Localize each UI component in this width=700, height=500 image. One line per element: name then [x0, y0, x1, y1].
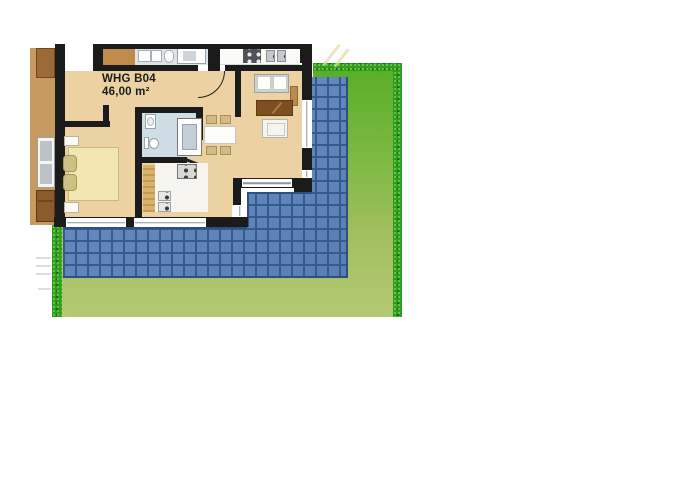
- nightstand-top: [64, 136, 79, 146]
- upper-toilet: [164, 50, 174, 63]
- sofa-cushion-2: [273, 76, 287, 90]
- wall-hall: [65, 121, 110, 127]
- lawn-border-right: [393, 63, 402, 317]
- wall-east-upper: [302, 63, 312, 100]
- upper-appliance-1: [266, 50, 275, 62]
- unit-name: WHG B04: [102, 73, 156, 86]
- bath-shower-tray: [182, 124, 197, 150]
- window-east-small: [302, 170, 311, 178]
- upper-stove: [243, 49, 261, 63]
- nightstand-bottom: [64, 202, 79, 213]
- upper-brown-room: [103, 48, 135, 65]
- wall-hall-stub: [103, 105, 109, 121]
- bath-toilet-bowl: [149, 138, 159, 149]
- window-step: [232, 205, 247, 217]
- wall-unit-top-a: [103, 65, 198, 71]
- neighbor-wardrobe: [36, 48, 55, 78]
- path-mark-2: [36, 265, 51, 267]
- unit-label: WHG B04 46,00 m²: [102, 73, 156, 98]
- upper-shower-tray: [183, 51, 196, 61]
- path-mark-3: [36, 273, 51, 275]
- window-kitchen-south: [134, 218, 206, 227]
- bath-sink-bowl: [147, 117, 154, 126]
- wall-partition-living: [235, 71, 241, 117]
- lawn-border-left: [52, 225, 62, 317]
- dining-table: [204, 126, 236, 144]
- window-east-large: [302, 100, 311, 148]
- path-mark-4: [38, 288, 51, 290]
- window-living-south: [242, 179, 292, 187]
- sofa-cushion-1: [257, 76, 271, 90]
- wall-right-top: [300, 44, 312, 63]
- dining-chair-4: [220, 146, 231, 155]
- armchair: [262, 119, 288, 138]
- floor-plan: WHG B04 46,00 m²: [0, 0, 700, 500]
- armchair-seat: [267, 123, 285, 136]
- kitchen-appliance-1: [158, 191, 171, 201]
- upper-appliance-2: [277, 50, 286, 62]
- kitchen-stove: [177, 164, 197, 179]
- window-bedroom-south: [66, 218, 126, 227]
- terrace-edge-right: [346, 77, 348, 278]
- wall-step: [233, 182, 241, 205]
- pillow-1: [63, 155, 77, 172]
- neighbor-dresser: [36, 190, 55, 222]
- pillow-2: [63, 174, 77, 191]
- terrace-edge-strip-top: [63, 227, 247, 229]
- neighbor-dresser-line: [38, 200, 53, 202]
- coffee-table: [256, 100, 293, 116]
- terrace-edge-bottom: [63, 276, 348, 278]
- neighbor-window-pane-bottom: [40, 164, 52, 184]
- wall-divider-b: [208, 44, 220, 71]
- unit-area: 46,00 m²: [102, 86, 156, 99]
- upper-sink-divider: [150, 51, 152, 61]
- coffee-table-grain: [272, 102, 283, 114]
- terrace-edge-step-top: [247, 192, 312, 194]
- kitchen-appliance-2: [158, 202, 171, 212]
- lawn-border-top: [313, 63, 402, 71]
- neighbor-window-pane-top: [40, 141, 52, 161]
- wall-east-mid: [302, 148, 312, 170]
- wall-divider-a: [93, 44, 103, 71]
- wall-top-line: [93, 44, 310, 49]
- dining-chair-3: [206, 146, 217, 155]
- corridor-gap: [65, 40, 93, 71]
- kitchen-cabinet: [143, 165, 155, 212]
- dining-chair-1: [206, 115, 217, 124]
- path-mark-1: [36, 257, 51, 259]
- dining-chair-2: [220, 115, 231, 124]
